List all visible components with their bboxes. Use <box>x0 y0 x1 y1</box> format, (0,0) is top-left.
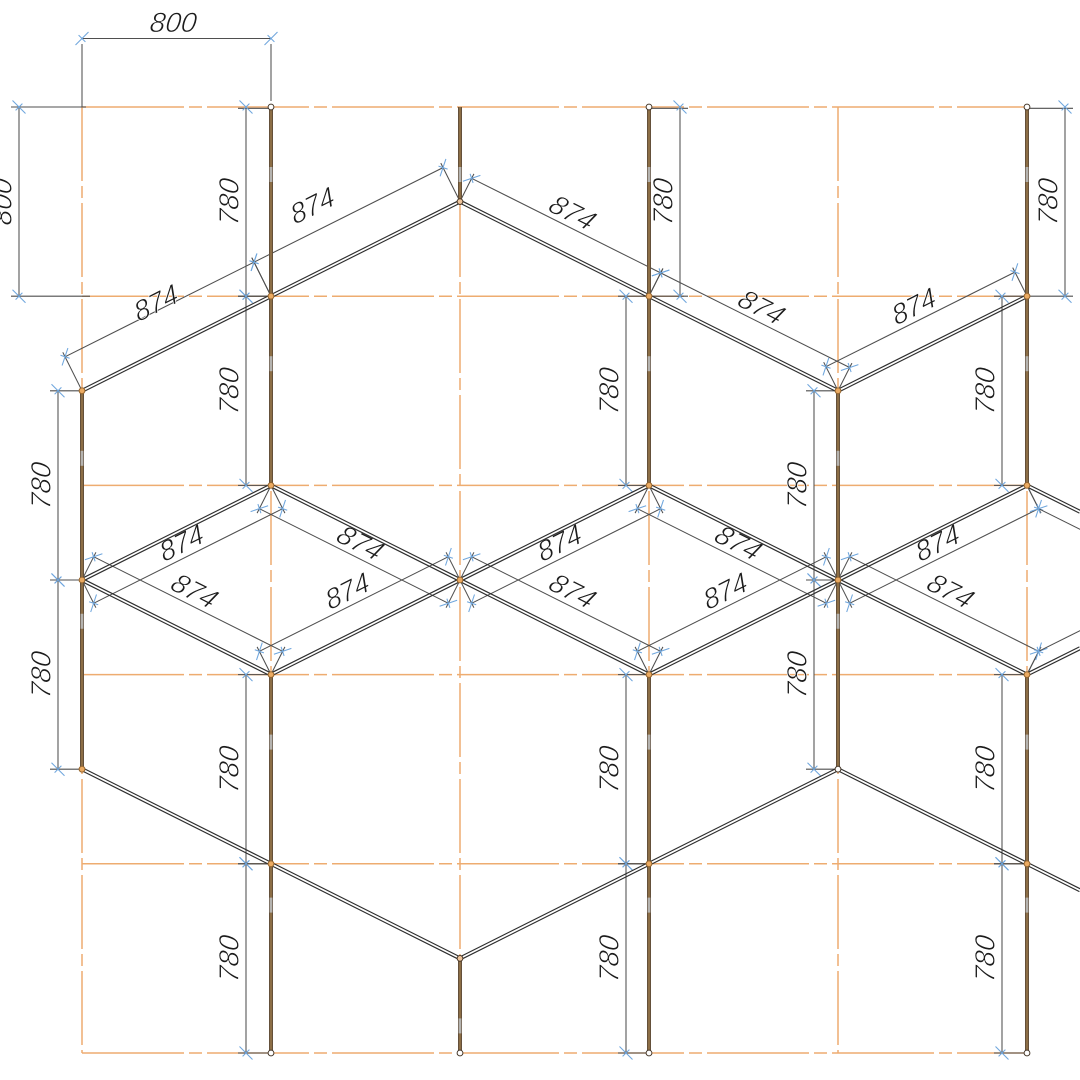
svg-text:800: 800 <box>148 7 199 38</box>
svg-text:800: 800 <box>0 176 18 227</box>
svg-text:780: 780 <box>782 460 813 511</box>
svg-text:780: 780 <box>648 176 679 227</box>
svg-text:780: 780 <box>1033 176 1064 227</box>
svg-text:780: 780 <box>782 649 813 700</box>
svg-text:780: 780 <box>214 365 245 416</box>
svg-text:780: 780 <box>26 460 57 511</box>
svg-text:780: 780 <box>594 933 625 984</box>
svg-text:780: 780 <box>214 933 245 984</box>
svg-text:780: 780 <box>594 744 625 795</box>
svg-text:780: 780 <box>970 744 1001 795</box>
svg-text:780: 780 <box>26 649 57 700</box>
svg-text:780: 780 <box>970 365 1001 416</box>
svg-text:780: 780 <box>214 744 245 795</box>
svg-text:780: 780 <box>594 365 625 416</box>
svg-text:780: 780 <box>970 933 1001 984</box>
svg-text:780: 780 <box>214 176 245 227</box>
